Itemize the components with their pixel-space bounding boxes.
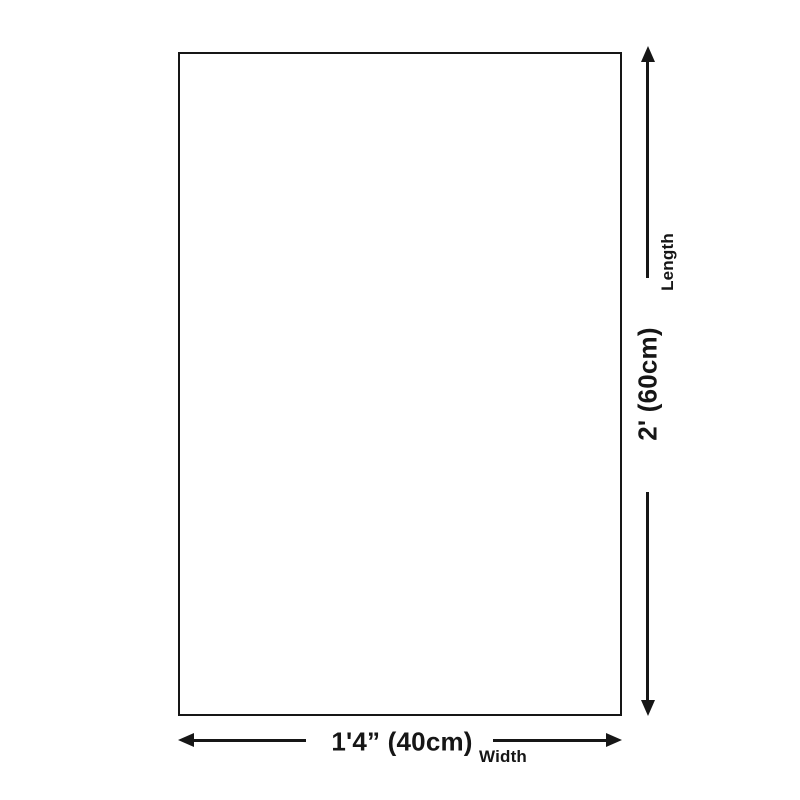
product-outline-rectangle bbox=[178, 52, 622, 716]
length-value-label: 2' (60cm) bbox=[633, 327, 664, 440]
width-arrow-left-icon bbox=[178, 733, 194, 747]
length-arrow-down-icon bbox=[641, 700, 655, 716]
width-dimension-line-right bbox=[493, 739, 607, 742]
length-dimension-line-bottom bbox=[646, 492, 649, 701]
length-arrow-up-icon bbox=[641, 46, 655, 62]
width-arrow-right-icon bbox=[606, 733, 622, 747]
width-axis-label: Width bbox=[479, 747, 527, 767]
width-value-label: 1'4” (40cm) bbox=[331, 727, 472, 758]
width-dimension-line-left bbox=[193, 739, 306, 742]
length-axis-label: Length bbox=[658, 233, 678, 291]
length-dimension-line-top bbox=[646, 61, 649, 278]
dimension-diagram: Length 2' (60cm) 1'4” (40cm) Width bbox=[0, 0, 800, 800]
